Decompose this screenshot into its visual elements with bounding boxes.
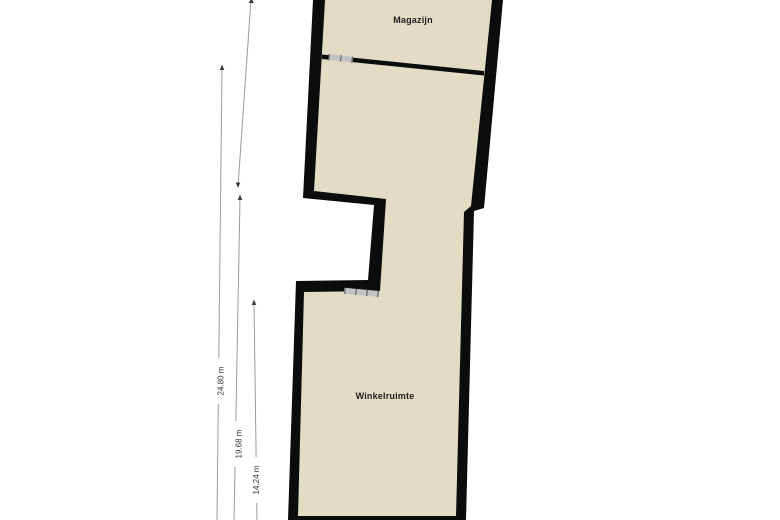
dimension-label: 14.24 m bbox=[252, 465, 261, 494]
floor-plan-svg: 24.80 m 19.68 m 14.24 m Magazijn Winkelr… bbox=[0, 0, 780, 520]
dimension-line bbox=[217, 68, 222, 520]
dimension-label: 19.68 m bbox=[235, 429, 244, 458]
dimension-line-24-80: 24.80 m bbox=[214, 65, 227, 520]
dimension-label: 24.80 m bbox=[217, 366, 226, 395]
dimension-arrow-up bbox=[249, 0, 254, 3]
dimension-arrow-up bbox=[220, 65, 225, 71]
dimension-line-19-68: 19.68 m bbox=[232, 195, 245, 520]
dimension-arrow-up bbox=[252, 300, 257, 306]
dimension-arrow-down bbox=[236, 183, 241, 189]
dimension-line-partial bbox=[236, 0, 254, 188]
dimension-line-14-24: 14.24 m bbox=[250, 300, 263, 520]
dimension-arrow-up bbox=[238, 195, 243, 201]
room-label-magazijn: Magazijn bbox=[393, 15, 433, 25]
dimension-line bbox=[238, 0, 251, 186]
room-label-winkelruimte: Winkelruimte bbox=[356, 391, 415, 401]
dimension-line bbox=[234, 198, 240, 520]
floor-plan-canvas: 24.80 m 19.68 m 14.24 m Magazijn Winkelr… bbox=[0, 0, 780, 520]
notch-window-glass bbox=[344, 291, 379, 294]
